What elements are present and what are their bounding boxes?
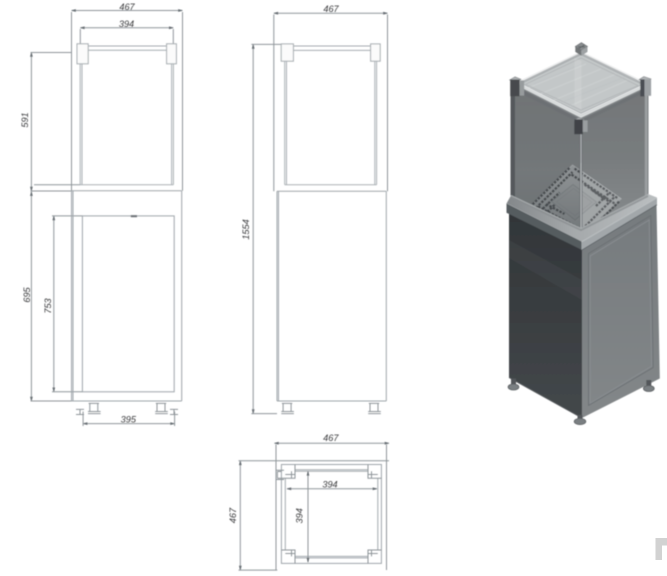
svg-text:394: 394 — [119, 19, 134, 29]
svg-text:395: 395 — [121, 415, 137, 425]
svg-text:394: 394 — [322, 480, 337, 490]
svg-text:591: 591 — [20, 112, 30, 127]
svg-text:695: 695 — [22, 286, 32, 302]
svg-text:467: 467 — [228, 507, 238, 523]
svg-text:1554: 1554 — [241, 219, 251, 239]
svg-text:753: 753 — [43, 297, 53, 313]
svg-text:467: 467 — [119, 2, 135, 12]
svg-text:467: 467 — [323, 433, 339, 443]
svg-text:394: 394 — [294, 508, 304, 523]
svg-text:467: 467 — [323, 4, 339, 14]
